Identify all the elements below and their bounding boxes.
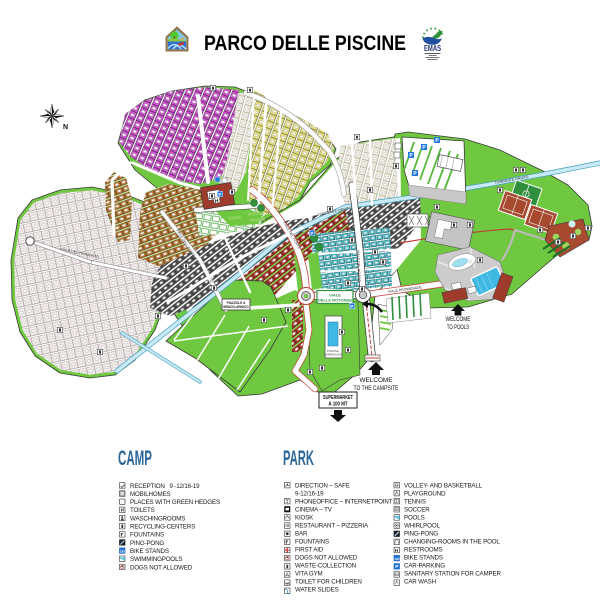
svg-text:PING-PONG: PING-PONG	[404, 530, 438, 537]
svg-text:P: P	[350, 304, 353, 309]
svg-text:BIKE STANDS: BIKE STANDS	[404, 554, 443, 561]
svg-text:CAR WASH: CAR WASH	[404, 578, 436, 585]
svg-text:PLAYGROUND: PLAYGROUND	[404, 490, 446, 497]
svg-text:CAR-PARKING: CAR-PARKING	[404, 562, 445, 569]
svg-text:SANITARY STATION FOR CAMPER: SANITARY STATION FOR CAMPER	[404, 570, 501, 577]
svg-text:EMAS: EMAS	[424, 44, 441, 53]
svg-text:DOGS NOT ALLOWED: DOGS NOT ALLOWED	[130, 564, 193, 571]
svg-text:POOLS: POOLS	[404, 514, 425, 521]
svg-text:CAMPEGGIO: CAMPEGGIO	[324, 353, 343, 357]
svg-text:WASCHINGROOMS: WASCHINGROOMS	[130, 515, 185, 522]
svg-text:WELCOME: WELCOME	[360, 377, 393, 384]
svg-text:WELCOME: WELCOME	[446, 316, 471, 323]
svg-text:FOUNTAINS: FOUNTAINS	[295, 538, 329, 545]
svg-text:TO THE CAMPSITE: TO THE CAMPSITE	[354, 385, 399, 392]
svg-text:N: N	[63, 124, 68, 131]
svg-text:SOCCER: SOCCER	[404, 506, 430, 513]
svg-text:DIRECTION – SAFE: DIRECTION – SAFE	[295, 482, 350, 489]
svg-text:TENNIS: TENNIS	[404, 498, 426, 505]
svg-text:SWIMMINGPOOLS: SWIMMINGPOOLS	[130, 556, 182, 563]
svg-text:BRADO-ARNICO: BRADO-ARNICO	[223, 305, 249, 309]
svg-text:VITA GYM: VITA GYM	[295, 570, 323, 577]
svg-text:CAMP: CAMP	[118, 447, 152, 470]
svg-text:FOUNTAINS: FOUNTAINS	[130, 532, 164, 539]
svg-text:PHONEOFFICE – INTERNETPOINT: PHONEOFFICE – INTERNETPOINT	[295, 498, 393, 505]
svg-text:KIOSK: KIOSK	[295, 514, 314, 521]
svg-text:A 100 MT: A 100 MT	[329, 402, 349, 408]
svg-text:RESTAURANT – PIZZERIA: RESTAURANT – PIZZERIA	[295, 522, 369, 529]
svg-text:PING-PONG: PING-PONG	[130, 540, 164, 547]
svg-text:BAR: BAR	[295, 530, 308, 537]
svg-text:TO POOLS: TO POOLS	[447, 324, 470, 331]
svg-text:PARCO DELLE PISCINE: PARCO DELLE PISCINE	[204, 31, 406, 55]
svg-text:9-12/16-19: 9-12/16-19	[295, 490, 324, 497]
svg-text:VOLLEY- AND BASKETBALL: VOLLEY- AND BASKETBALL	[404, 482, 483, 489]
svg-text:P: P	[310, 231, 313, 236]
svg-text:H: H	[121, 508, 124, 513]
svg-text:RESTROOMS: RESTROOMS	[404, 546, 443, 553]
svg-text:WHIRLPOOL: WHIRLPOOL	[404, 522, 440, 529]
svg-text:WATER SLIDES: WATER SLIDES	[295, 586, 339, 593]
svg-text:CHANGING-ROOMS IN THE POOL: CHANGING-ROOMS IN THE POOL	[404, 538, 500, 545]
svg-text:SUPERMARKET: SUPERMARKET	[323, 395, 354, 401]
svg-text:H: H	[395, 548, 398, 553]
svg-text:DOGS NOT ALLOWED: DOGS NOT ALLOWED	[295, 554, 358, 561]
svg-text:TOILET FOR CHILDREN: TOILET FOR CHILDREN	[295, 578, 362, 585]
svg-text:MOBILHOMES: MOBILHOMES	[130, 491, 170, 498]
svg-text:P: P	[218, 192, 221, 197]
svg-text:FIRST AID: FIRST AID	[295, 546, 324, 553]
svg-text:CINEMA – TV: CINEMA – TV	[295, 506, 333, 513]
svg-text:PARK: PARK	[283, 447, 314, 470]
svg-text:RECEPTION 9 -12/16-19: RECEPTION 9 -12/16-19	[130, 483, 200, 490]
svg-text:BIKE STANDS: BIKE STANDS	[130, 548, 169, 555]
svg-text:DELLE ROTONDE: DELLE ROTONDE	[318, 298, 352, 303]
svg-text:PLACES WITH GREEN HEDGES: PLACES WITH GREEN HEDGES	[130, 499, 220, 506]
svg-text:wc: wc	[284, 580, 291, 585]
svg-text:WASTE-COLLECTION: WASTE-COLLECTION	[295, 562, 356, 569]
svg-text:TOILETS: TOILETS	[130, 507, 155, 514]
svg-text:RECYCLING-CENTERS: RECYCLING-CENTERS	[130, 524, 195, 531]
